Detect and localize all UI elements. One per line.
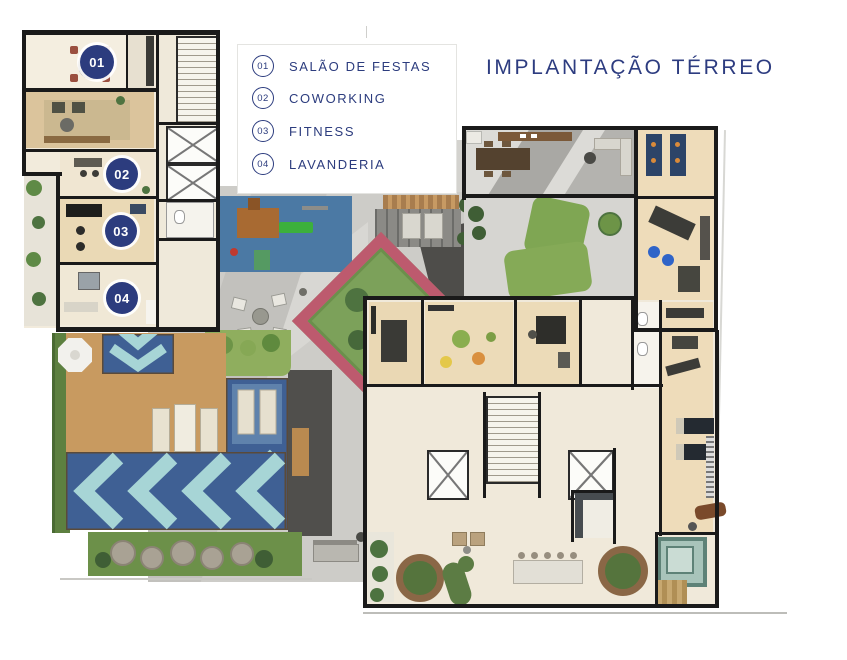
pergola-slats (383, 195, 459, 209)
gym-machine (666, 308, 704, 318)
legend-label: LAVANDERIA (289, 157, 385, 172)
kitchen-counter (146, 36, 154, 86)
kids-rug (486, 332, 496, 342)
skylight (466, 131, 482, 144)
legend-row: 04 LAVANDERIA (252, 153, 385, 175)
elevator-shaft (166, 126, 220, 164)
balance-beam (302, 206, 328, 210)
wall (58, 196, 156, 199)
gourmet-sofa (620, 138, 632, 176)
gourmet-appliance (520, 134, 526, 138)
lounge-desk (44, 136, 110, 143)
mat-dot (651, 158, 656, 163)
stairwell (176, 36, 220, 124)
legend-row: 01 SALÃO DE FESTAS (252, 55, 431, 77)
plan-marker-01: 01 (80, 45, 114, 79)
plan-marker-02: 02 (106, 158, 138, 190)
plant (32, 292, 46, 306)
legend-number-badge: 02 (252, 87, 274, 109)
play-mat (254, 250, 270, 270)
meeting-table (381, 320, 407, 362)
ground-line (363, 612, 787, 614)
yoga-mat (646, 134, 662, 176)
wall (126, 34, 128, 88)
laundry-bench (64, 302, 98, 312)
stool (688, 522, 697, 531)
ground-line (60, 578, 312, 580)
wall (363, 604, 719, 608)
kids-rug (452, 330, 470, 348)
round-planter (598, 546, 648, 596)
legend-label: FITNESS (289, 124, 355, 139)
toilet (637, 342, 648, 356)
wall (514, 300, 517, 386)
lounge-sofa (72, 102, 85, 113)
gym-machine (678, 266, 700, 292)
legend-number-badge: 04 (252, 153, 274, 175)
copa-counter (575, 492, 583, 538)
gray-shrub (200, 546, 224, 570)
wall (571, 490, 616, 493)
gym-machine (700, 216, 710, 260)
toilet (174, 210, 185, 224)
page-title: IMPLANTAÇÃO TÉRREO (486, 56, 775, 80)
mat-dot (651, 142, 656, 147)
wall (158, 122, 216, 125)
floor-plan: 01 SALÃO DE FESTAS 02 COWORKING 03 FITNE… (0, 0, 847, 660)
play-structure (237, 208, 279, 238)
office-desk (536, 316, 566, 344)
wall (715, 330, 719, 608)
wall (655, 532, 658, 608)
plant (26, 252, 41, 267)
plant (26, 180, 42, 196)
exercise-bike (76, 226, 85, 235)
wall (579, 300, 582, 386)
wall (58, 262, 156, 265)
wall (24, 88, 158, 92)
mosaic-inner (666, 546, 694, 574)
gray-shrub (170, 540, 196, 566)
desk-chair (92, 170, 99, 177)
shrub (468, 206, 484, 222)
legend-row: 02 COWORKING (252, 87, 386, 109)
wall (613, 448, 616, 544)
bench-pillow (676, 444, 684, 460)
lobby-armchair (470, 532, 485, 546)
gourmet-chair (502, 171, 511, 177)
plan-marker-04: 04 (106, 282, 138, 314)
coworking-desk (74, 158, 102, 167)
desk-chair (80, 170, 87, 177)
wall (462, 126, 466, 200)
shrub (255, 550, 273, 568)
elevator-shaft (166, 164, 220, 202)
pergola-lounger (424, 213, 443, 239)
wall (655, 532, 718, 535)
wall (634, 328, 718, 332)
elevator-shaft (427, 450, 469, 500)
gym-ball (648, 246, 660, 258)
dining-chair (70, 46, 78, 54)
legend-number-badge: 01 (252, 55, 274, 77)
kids-shelf (428, 305, 454, 311)
tree (598, 212, 622, 236)
wall (158, 238, 216, 241)
wall (483, 392, 486, 498)
gym-mat (130, 204, 146, 214)
wall (462, 126, 718, 130)
wall (634, 126, 638, 332)
wall (24, 149, 158, 152)
wall (22, 30, 220, 35)
office-side-desk (558, 352, 570, 368)
umbrella-center (70, 350, 80, 360)
bench (313, 544, 359, 562)
wall (714, 126, 718, 332)
main-stairwell (486, 396, 540, 484)
elevator-x-mark (168, 128, 218, 162)
dining-chair (70, 74, 78, 82)
wall (22, 30, 26, 176)
wood-steps (657, 580, 687, 605)
wall (56, 327, 220, 332)
bench-pillow (676, 418, 684, 434)
entry-plant (370, 540, 388, 558)
entry-plant (372, 566, 388, 582)
treadmill (66, 204, 102, 217)
plan-marker-03: 03 (105, 215, 137, 247)
deck-daybed (174, 404, 196, 452)
kids-rug (472, 352, 485, 365)
gray-shrub (110, 540, 136, 566)
mat-dot (675, 158, 680, 163)
wall (216, 30, 220, 332)
toilet (637, 312, 648, 326)
bar-stool (531, 552, 538, 559)
wall (659, 300, 662, 536)
wall (365, 384, 663, 387)
bar-stool (570, 552, 577, 559)
gourmet-chair (484, 171, 493, 177)
wall (363, 296, 637, 300)
gray-shrub (140, 546, 164, 570)
gourmet-chair (502, 141, 511, 147)
legend-row: 03 FITNESS (252, 120, 355, 142)
bush (262, 334, 280, 352)
bar-counter (513, 560, 583, 584)
wall (571, 490, 574, 542)
gourmet-table (476, 148, 530, 170)
office-chair (528, 330, 537, 339)
wall (538, 392, 541, 498)
gym-machine (672, 336, 698, 349)
yoga-mat (670, 134, 686, 176)
wall (462, 194, 638, 198)
entry-plant (370, 588, 384, 602)
gray-shrub (230, 542, 254, 566)
wall (421, 300, 424, 386)
wall (363, 296, 367, 608)
shrub (472, 226, 486, 240)
bush (240, 340, 256, 356)
exercise-bike (76, 242, 85, 251)
legend-label: COWORKING (289, 91, 386, 106)
lobby-table (463, 546, 471, 554)
pergola-lounger (402, 213, 421, 239)
mat-dot (675, 142, 680, 147)
gym-ball (662, 254, 674, 266)
wood-walkway (292, 428, 309, 476)
legend-card: 01 SALÃO DE FESTAS 02 COWORKING 03 FITNE… (237, 44, 457, 194)
lounge-sofa (52, 102, 65, 113)
plant (142, 186, 150, 194)
plant (116, 96, 125, 105)
pool-main (66, 452, 286, 530)
survey-tick (366, 26, 367, 38)
deck-lounger (152, 408, 170, 452)
washer (78, 272, 100, 290)
coffee-table (584, 152, 596, 164)
legend-number-badge: 03 (252, 120, 274, 142)
deck-lounger (200, 408, 218, 452)
lobby-armchair (452, 532, 467, 546)
wall (631, 300, 634, 390)
plant (32, 216, 45, 229)
planter-pot (299, 288, 307, 296)
round-planter (396, 554, 444, 602)
legend-label: SALÃO DE FESTAS (289, 59, 431, 74)
pool-top (102, 334, 174, 374)
wall (156, 30, 159, 328)
kids-rug (440, 356, 452, 368)
wall (158, 199, 216, 202)
seating-table (252, 308, 269, 325)
elevator-x-mark (429, 452, 467, 498)
elevator-x-mark (168, 166, 218, 200)
bar-stool (557, 552, 564, 559)
curved-sofa-lobe (458, 556, 474, 572)
lounge-table (60, 118, 74, 132)
shrub (95, 552, 111, 568)
spring-toy (230, 248, 238, 256)
bar-stool (544, 552, 551, 559)
bar-stool (518, 552, 525, 559)
gourmet-chair (484, 141, 493, 147)
meeting-shelf (371, 306, 376, 334)
wall (638, 196, 716, 199)
play-slide (279, 222, 313, 233)
equipment-rack (706, 436, 714, 498)
gourmet-appliance (531, 134, 537, 138)
play-tower (248, 198, 260, 210)
